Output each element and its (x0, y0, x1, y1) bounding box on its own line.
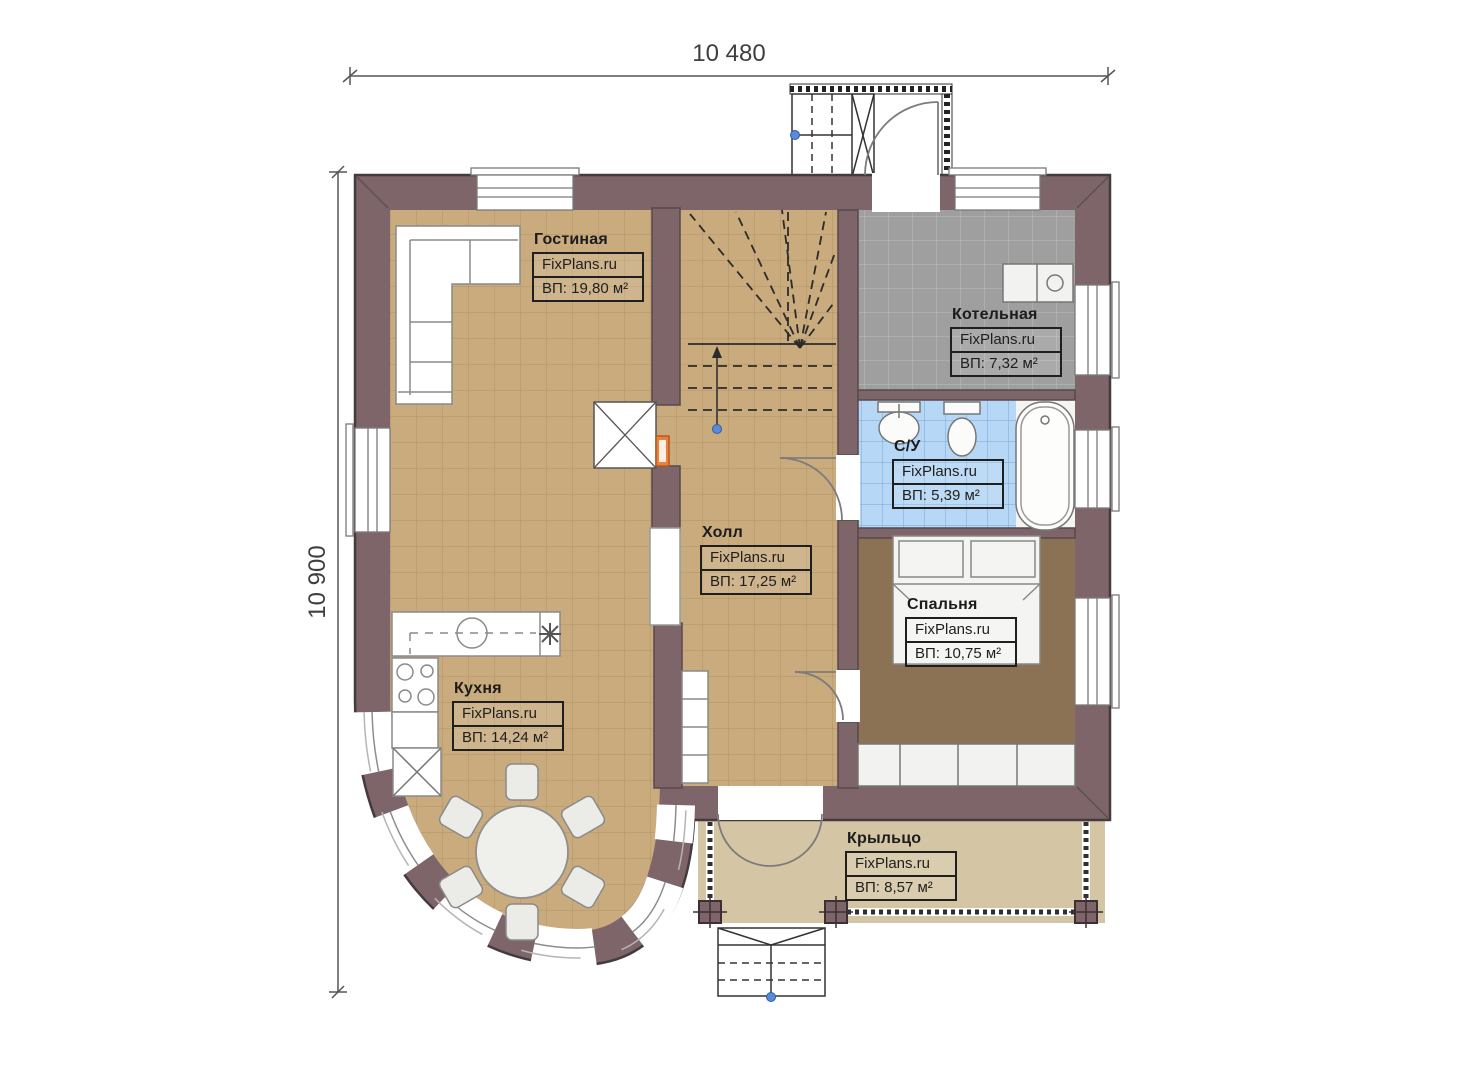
room-label-boiler: Котельная FixPlans.ru ВП: 7,32 м² (950, 306, 1062, 377)
room-info-box: FixPlans.ru ВП: 7,32 м² (950, 327, 1062, 377)
room-info-box: FixPlans.ru ВП: 8,57 м² (845, 851, 957, 901)
window-boiler-right (1075, 285, 1110, 375)
room-area: ВП: 8,57 м² (847, 877, 955, 899)
floor-plan-page: 10 480 10 900 Гостиная FixPlans.ru ВП: 1… (0, 0, 1473, 1080)
watermark-text: FixPlans.ru (952, 329, 1060, 353)
dimension-height-label: 10 900 (304, 545, 332, 618)
wall-kitchen-hall (654, 623, 682, 788)
room-area: ВП: 5,39 м² (894, 485, 1002, 507)
wall-hall-right (838, 210, 858, 455)
radiator (656, 436, 669, 466)
room-name: Спальня (907, 596, 1017, 614)
window-living-top (477, 175, 573, 210)
window-bathroom-right (1075, 430, 1110, 508)
room-info-box: FixPlans.ru ВП: 5,39 м² (892, 459, 1004, 509)
room-area: ВП: 14,24 м² (454, 727, 562, 749)
watermark-text: FixPlans.ru (702, 547, 810, 571)
cased-opening (650, 528, 680, 625)
room-area: ВП: 17,25 м² (702, 571, 810, 593)
door-opening-bathroom (836, 455, 860, 520)
room-label-bedroom: Спальня FixPlans.ru ВП: 10,75 м² (905, 596, 1017, 667)
boiler-unit (1003, 264, 1073, 302)
fireplace (594, 402, 656, 468)
room-label-porch: Крыльцо FixPlans.ru ВП: 8,57 м² (845, 830, 957, 901)
room-name: Гостиная (534, 231, 644, 249)
room-info-box: FixPlans.ru ВП: 17,25 м² (700, 545, 812, 595)
watermark-text: FixPlans.ru (534, 254, 642, 278)
entrance-steps-top (790, 84, 952, 177)
dining-table (476, 806, 568, 898)
room-name: С/У (894, 438, 1004, 456)
door-opening-porch (718, 786, 823, 820)
room-label-bathroom: С/У FixPlans.ru ВП: 5,39 м² (892, 438, 1004, 509)
window-bedroom-right (1075, 598, 1110, 705)
hall-closet (682, 671, 708, 783)
door-opening-bedroom (836, 670, 860, 722)
room-area: ВП: 7,32 м² (952, 353, 1060, 375)
wall-living-stairs (652, 208, 680, 405)
room-name: Холл (702, 524, 812, 542)
watermark-text: FixPlans.ru (907, 619, 1015, 643)
watermark-text: FixPlans.ru (847, 853, 955, 877)
room-info-box: FixPlans.ru ВП: 10,75 м² (905, 617, 1017, 667)
wardrobe (858, 744, 1075, 786)
room-label-living: Гостиная FixPlans.ru ВП: 19,80 м² (532, 231, 644, 302)
room-area: ВП: 10,75 м² (907, 643, 1015, 665)
section-marker (791, 131, 800, 140)
section-marker (767, 993, 776, 1002)
room-name: Котельная (952, 306, 1062, 324)
door-opening-entrance (872, 173, 940, 212)
window-boiler-top (955, 175, 1040, 210)
room-name: Кухня (454, 680, 564, 698)
room-info-box: FixPlans.ru ВП: 19,80 м² (532, 252, 644, 302)
kitchen-hood-symbol (539, 623, 561, 645)
entrance-steps-bottom (718, 928, 825, 1002)
wall-boiler-bath (858, 390, 1075, 400)
room-label-hall: Холл FixPlans.ru ВП: 17,25 м² (700, 524, 812, 595)
watermark-text: FixPlans.ru (894, 461, 1002, 485)
bathtub (1016, 402, 1074, 530)
room-name: Крыльцо (847, 830, 957, 848)
room-area: ВП: 19,80 м² (534, 278, 642, 300)
room-info-box: FixPlans.ru ВП: 14,24 м² (452, 701, 564, 751)
dimension-width-label: 10 480 (692, 40, 765, 68)
dimension-line-top (343, 67, 1115, 85)
window-left (355, 428, 390, 532)
watermark-text: FixPlans.ru (454, 703, 562, 727)
section-marker (713, 425, 722, 434)
room-label-kitchen: Кухня FixPlans.ru ВП: 14,24 м² (452, 680, 564, 751)
